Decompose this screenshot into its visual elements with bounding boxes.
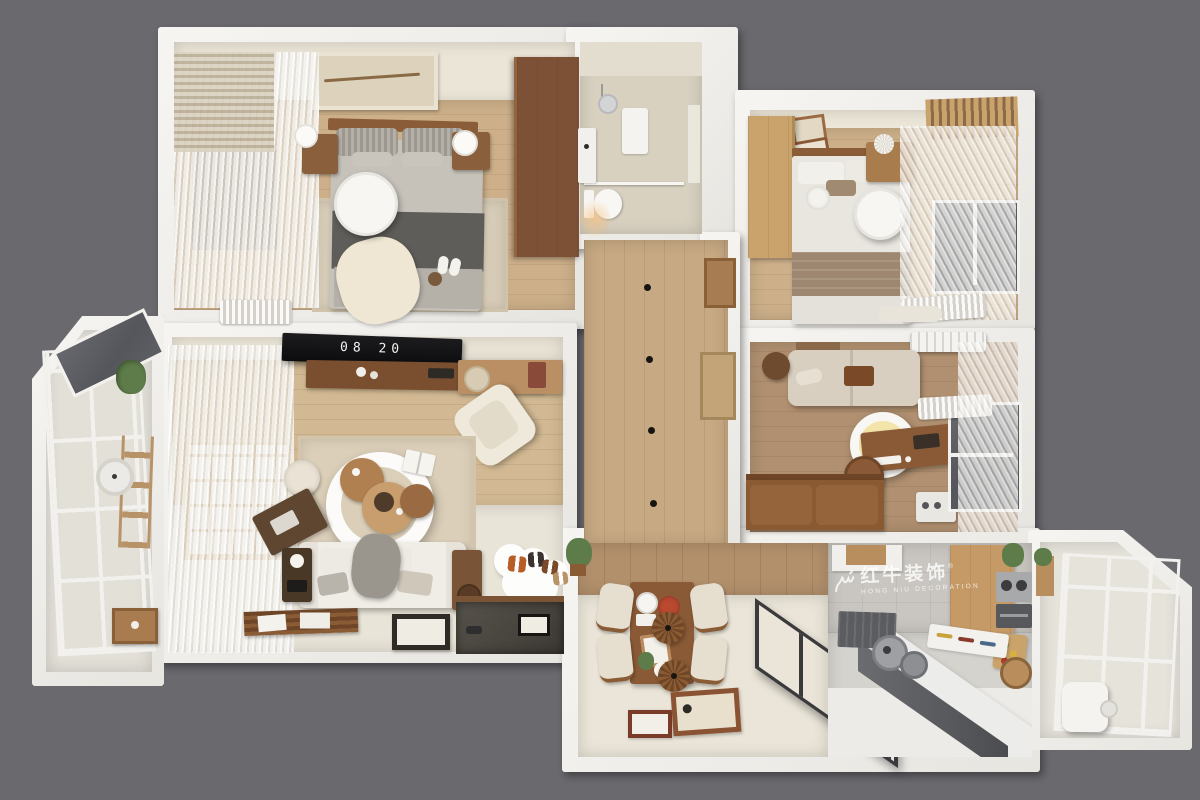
toy-car <box>466 626 482 634</box>
kitchen-wood-upper <box>846 545 886 565</box>
study-daybed <box>746 480 884 530</box>
hall-downlight-4 <box>650 500 657 507</box>
console-decor-1 <box>356 367 366 377</box>
bench-paper-2 <box>300 613 330 629</box>
slippers-orange <box>507 555 527 573</box>
pendant-1-bulb <box>665 625 671 631</box>
pendant-2-bulb <box>671 673 677 679</box>
utensil-3 <box>980 641 996 647</box>
hongniu-bull-logo-icon <box>833 568 856 595</box>
master-cushion-left <box>352 152 392 167</box>
watermark: 红牛装饰 ® HONG NIU DECORATION <box>833 561 995 615</box>
kitchen: 红牛装饰 ® HONG NIU DECORATION <box>828 543 1032 757</box>
master-pendant-lamp <box>334 172 398 236</box>
crate-handle <box>131 621 139 629</box>
slat-bench <box>244 608 359 636</box>
utensil-1 <box>936 633 952 639</box>
master-lamp-left <box>294 124 318 148</box>
daybed-cushion-1 <box>750 485 812 525</box>
kitchen-plant <box>1002 543 1024 567</box>
shower-glass-edge <box>584 182 684 185</box>
bathroom-headwall <box>580 42 702 76</box>
shoes-tan <box>552 571 568 585</box>
sofa-pillow-taupe <box>397 570 434 597</box>
heater-knob <box>1100 700 1118 718</box>
hallway-door-niche-mid <box>700 352 736 420</box>
master-blinds <box>174 52 274 152</box>
coffee-cup-1 <box>352 468 360 476</box>
dining-plant-pot <box>570 564 586 576</box>
audio-knob-1 <box>922 502 929 509</box>
floor-frame-black <box>392 614 450 650</box>
master-wardrobe <box>514 57 579 257</box>
hanging-plant <box>116 360 146 394</box>
wood-pendant-2 <box>658 660 690 692</box>
planter-crate <box>112 608 158 644</box>
bedroom2-shell-lamp <box>874 134 894 154</box>
table-plant <box>638 652 654 670</box>
hallway-door-niche-top <box>704 258 736 308</box>
entry-recess <box>456 602 564 654</box>
dining-chair-tr <box>689 582 729 634</box>
bedroom2-curtains <box>900 126 1016 320</box>
daybed-cushion-2 <box>816 485 878 525</box>
desk-mouse <box>905 456 912 463</box>
study-curtains <box>958 342 1018 532</box>
dining-chair-tl <box>595 582 635 634</box>
hall-downlight-3 <box>648 427 655 434</box>
study-linear-light <box>796 342 840 350</box>
watermark-text: 红牛装饰 ® HONG NIU DECORATION <box>860 562 980 596</box>
apartment-floor-plan-render: 08 20 <box>0 0 1200 800</box>
typewriter <box>269 509 299 535</box>
coffee-tray <box>374 492 394 512</box>
book-spine <box>416 452 423 474</box>
burner-1 <box>1001 580 1012 591</box>
bedroom2-pendant-lamp <box>854 188 906 240</box>
desk-monitor <box>913 433 940 450</box>
master-lamp-right <box>452 130 478 156</box>
master-wall-art <box>312 52 438 110</box>
bath-vanity <box>578 128 596 183</box>
master-cushion-right <box>402 152 442 167</box>
shelf-books <box>528 362 546 388</box>
oven-handle <box>1000 614 1028 617</box>
pot-large-center <box>883 646 891 654</box>
pom-ball <box>428 272 442 286</box>
dining-chair-bl <box>596 632 635 683</box>
study-sofa <box>788 350 920 406</box>
bedroom2-knot-pillow <box>806 186 830 210</box>
warm-light-glow <box>580 196 610 242</box>
floor-frame-small <box>628 710 672 738</box>
entry-frame <box>518 614 550 636</box>
balcony-wall-clock <box>96 458 134 496</box>
cooktop <box>996 572 1032 602</box>
side-table-tray <box>287 580 307 592</box>
pot-small <box>900 651 928 679</box>
frame-art-dot <box>682 704 692 714</box>
study-sofa-pillow <box>795 367 823 386</box>
shower-mat <box>622 108 648 154</box>
shelf-basket <box>464 366 490 392</box>
utensil-2 <box>958 637 974 643</box>
console-speaker <box>428 368 454 378</box>
bedroom2-bench <box>878 306 942 322</box>
art-branch-motif <box>324 73 420 83</box>
faucet <box>584 144 589 149</box>
bedroom2-taupe-blanket <box>792 252 910 298</box>
balcony-plant <box>1034 548 1052 566</box>
bathroom-window <box>688 105 700 183</box>
side-table-lamp <box>290 554 304 568</box>
watermark-registered: ® <box>948 563 954 571</box>
living-curtains <box>168 345 294 653</box>
audio-knob-2 <box>934 502 941 509</box>
hall-downlight-2 <box>646 356 653 363</box>
water-heater <box>1062 682 1108 732</box>
study-side-table <box>762 352 790 380</box>
dining-chair-br <box>690 634 729 685</box>
sofa-pillow-gray <box>316 572 349 597</box>
bedroom2-cushion <box>826 180 856 196</box>
hall-downlight-1 <box>644 284 651 291</box>
burner-2 <box>1016 580 1027 591</box>
floor-frame-large <box>671 688 742 737</box>
side-coffee-table <box>400 484 434 518</box>
oven <box>996 604 1032 628</box>
console-decor-2 <box>370 371 378 379</box>
bench-paper-1 <box>257 614 286 632</box>
study-sofa-tray <box>844 366 874 386</box>
master-radiator <box>220 300 292 324</box>
wood-pendant-1 <box>652 612 684 644</box>
rattan-basket <box>1000 657 1032 689</box>
bedroom2-wardrobe <box>748 116 795 258</box>
clock-center <box>112 474 117 479</box>
shower-head <box>598 94 618 114</box>
dinner-plate <box>636 592 658 614</box>
sofa-side-table <box>282 548 312 602</box>
